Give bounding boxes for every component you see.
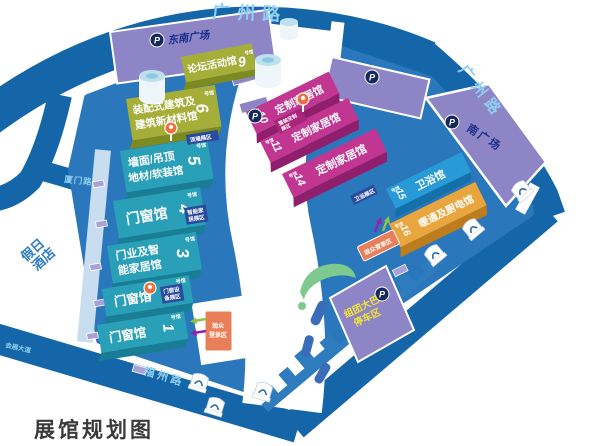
svg-text:P: P (369, 73, 376, 83)
parking-icon-south-plaza: P (445, 115, 459, 129)
map-title: 展馆规划图 (34, 418, 154, 442)
svg-text:P: P (379, 290, 386, 300)
svg-text:P: P (154, 36, 161, 46)
tag-door-equipment: 门窗设 备展区 (160, 284, 184, 304)
tag-smart-home: 智能家 居展区 (184, 205, 208, 225)
parking-icon-southeast: P (150, 33, 164, 47)
parking-icon-northeast: P (365, 70, 379, 84)
visitor-login-west-line2: 登录区 (208, 331, 227, 339)
visitor-login-west-line1: 观众 (212, 322, 225, 330)
road-label-top: 广州路 (212, 1, 288, 25)
hotel-label: 假日 酒店 (18, 234, 58, 274)
svg-text:P: P (449, 118, 456, 128)
venue-map: 装配式建筑及 建筑新材料馆 6 号馆 墙面/吊顶 地材/软装馆 5 号馆 门窗馆… (0, 0, 600, 446)
cylinder-tower-center (255, 54, 281, 88)
svg-text:P: P (252, 112, 259, 122)
cylinder-tower-west (139, 70, 165, 104)
svg-text:广州路: 广州路 (212, 1, 288, 25)
visitor-login-box-west: 观众 登录区 (205, 311, 232, 351)
parking-icon-center: P (248, 109, 262, 123)
